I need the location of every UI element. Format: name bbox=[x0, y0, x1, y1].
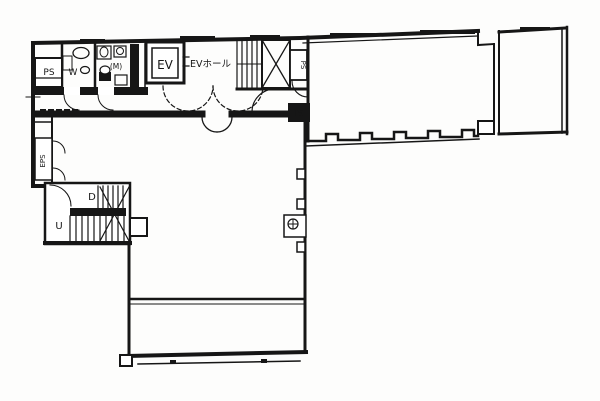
sink-bowl bbox=[117, 48, 124, 55]
label-ps-mid: PS bbox=[294, 109, 304, 118]
label-stair-down: D bbox=[88, 192, 96, 203]
top-wall-notch bbox=[478, 31, 494, 45]
stairs-lower: D U bbox=[45, 183, 147, 244]
corridor-wall bbox=[36, 114, 289, 132]
balcony-tick-2 bbox=[261, 359, 267, 363]
toilet-bowl bbox=[100, 66, 110, 74]
duct-wall bbox=[130, 44, 139, 87]
east-partition-wall bbox=[494, 31, 499, 134]
elevator-shaft: EV bbox=[146, 42, 189, 83]
label-ev-hall: EVホール bbox=[190, 59, 232, 70]
wc-women: W bbox=[63, 48, 90, 79]
hall-door-swing-arc-left bbox=[163, 86, 213, 111]
sink-fixture bbox=[73, 48, 89, 59]
label-wc-w: W bbox=[69, 68, 78, 78]
wing-corner-notch bbox=[478, 121, 494, 134]
lower-room bbox=[120, 122, 306, 366]
basin-fixture bbox=[81, 67, 90, 74]
double-door-arc-left bbox=[202, 117, 217, 132]
counter-dots bbox=[40, 109, 78, 115]
strip-door-arc-1 bbox=[53, 141, 65, 153]
toilet-south-wall bbox=[35, 87, 148, 95]
bottom-wall-left-notch bbox=[120, 355, 132, 366]
toilet-door-gap-m bbox=[98, 87, 114, 95]
floor-plan-page: PS W (M) EV EVホール bbox=[0, 0, 600, 401]
label-elevator: EV bbox=[157, 58, 174, 72]
stairs-upper bbox=[237, 40, 290, 88]
east-room-top-wall bbox=[499, 28, 566, 32]
floor-plan-drawing: PS W (M) EV EVホール bbox=[0, 0, 600, 401]
urinal-bowl bbox=[100, 47, 108, 57]
ps-room-upper-left: PS bbox=[35, 58, 62, 87]
double-door-arc-right bbox=[217, 117, 232, 132]
toilet-door-arc-m bbox=[98, 95, 113, 110]
right-wall-window-notch-3 bbox=[297, 242, 305, 252]
right-wall-window-notch-1 bbox=[297, 169, 305, 179]
label-stair-up: U bbox=[55, 221, 62, 232]
hall-door-arc-east bbox=[252, 89, 275, 112]
toilet-partitions bbox=[62, 44, 95, 87]
right-wall-fixture-box bbox=[284, 215, 306, 237]
balcony-tick-1 bbox=[170, 360, 176, 364]
label-eps: EPS bbox=[39, 154, 47, 168]
label-ps-upper-left: PS bbox=[43, 68, 54, 78]
west-service-strip: EPS bbox=[35, 109, 78, 186]
lower-room-bottom-wall bbox=[125, 352, 306, 356]
toilet-door-arc-w bbox=[64, 95, 79, 110]
stair-x-diagonals bbox=[262, 40, 290, 88]
label-wc-m: (M) bbox=[110, 62, 122, 71]
stair-block-protrusion bbox=[130, 218, 147, 236]
right-wing bbox=[306, 31, 499, 146]
east-room bbox=[499, 27, 567, 134]
counter-box bbox=[115, 75, 127, 85]
east-room-bottom-wall bbox=[499, 132, 567, 134]
ps-duct-box: PS bbox=[288, 103, 310, 122]
label-ps-upper-right: PS bbox=[299, 61, 307, 70]
strip-door-arc-2 bbox=[53, 168, 65, 180]
right-wall-window-notch-2 bbox=[297, 199, 305, 209]
balcony-line bbox=[138, 361, 300, 364]
toilet-door-gap-w bbox=[64, 87, 80, 95]
toilet-block: PS W (M) bbox=[35, 44, 148, 110]
wc-men: (M) bbox=[97, 46, 127, 85]
